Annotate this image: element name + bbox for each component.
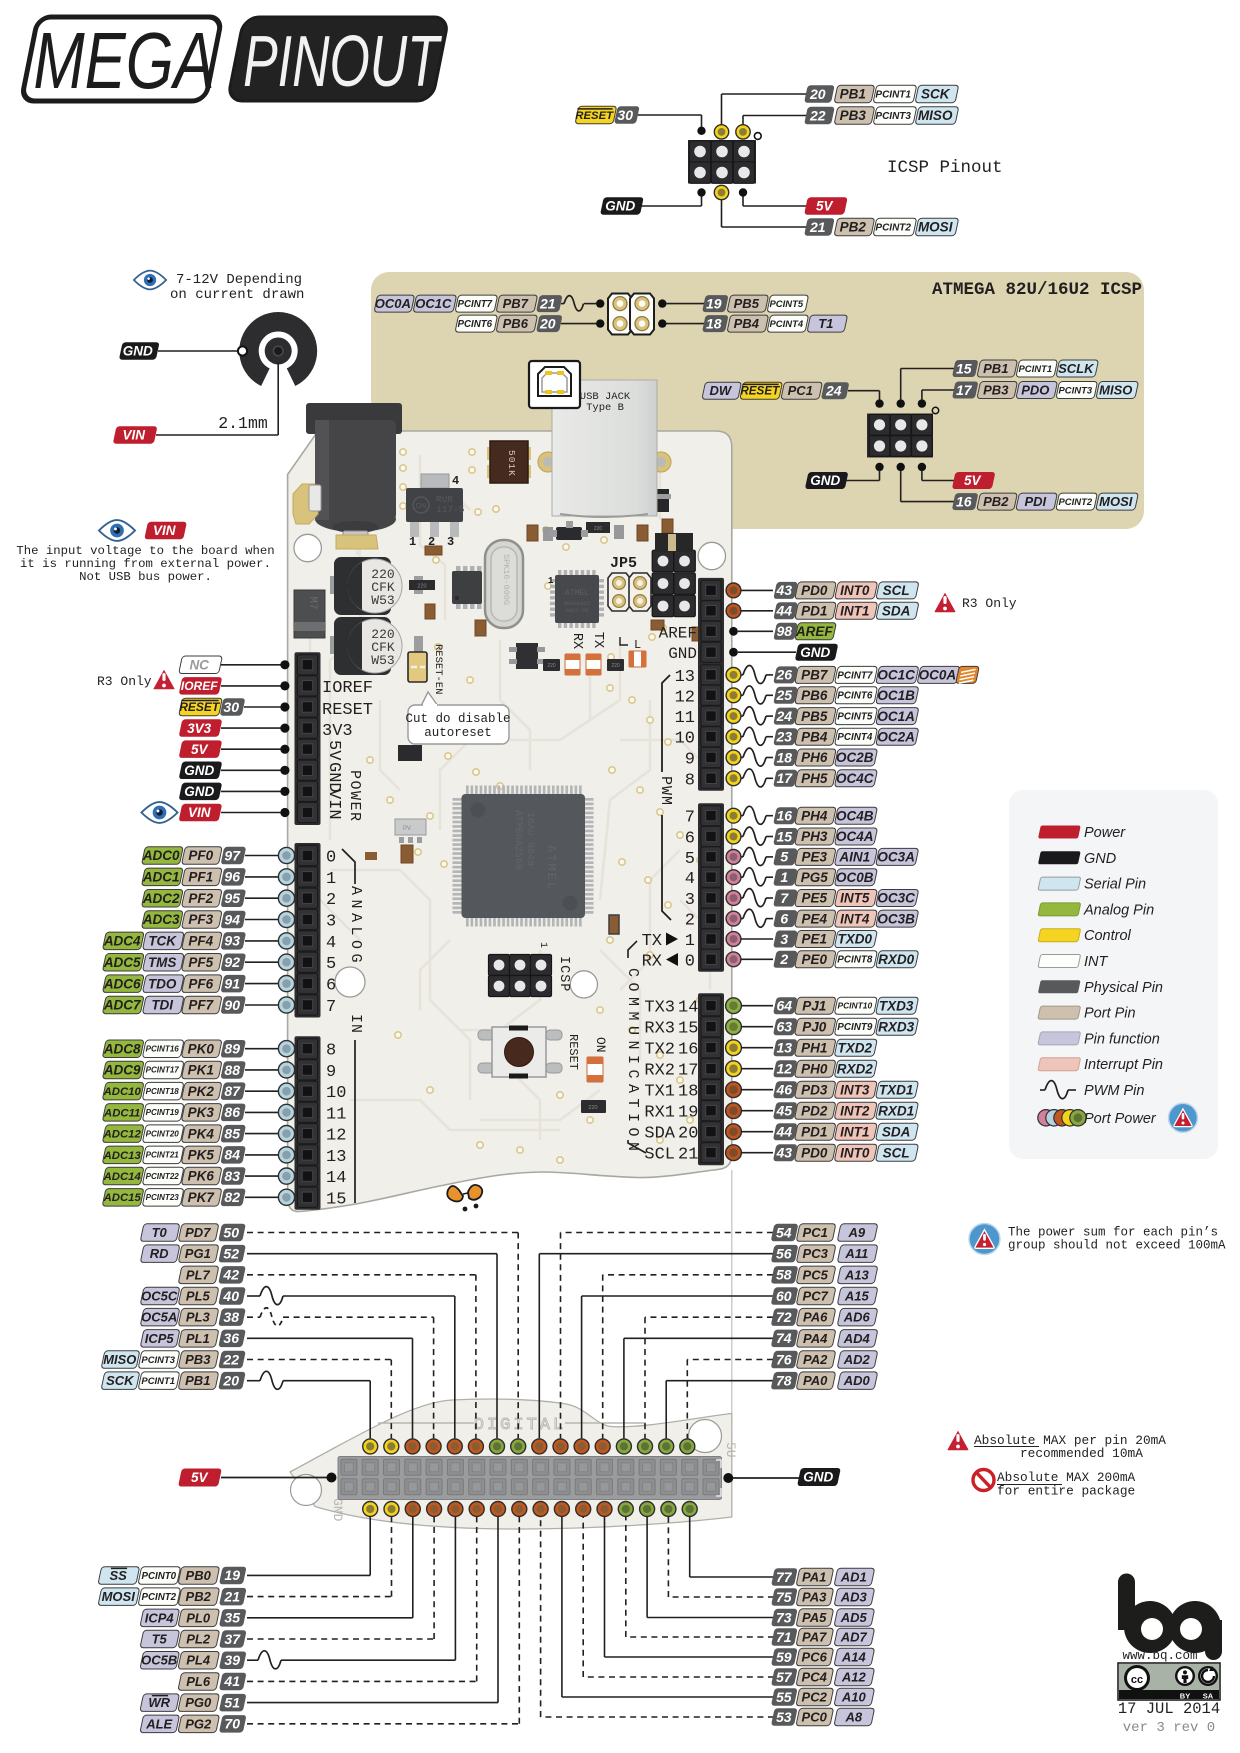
svg-text:VIN: VIN <box>123 428 146 443</box>
svg-text:OC4A: OC4A <box>836 829 874 844</box>
svg-text:24: 24 <box>776 708 793 724</box>
svg-text:117-5: 117-5 <box>436 504 465 515</box>
svg-text:PF6: PF6 <box>188 976 213 991</box>
svg-text:22: 22 <box>809 107 826 123</box>
svg-text:COMMUNICATION: COMMUNICATION <box>624 968 641 1157</box>
svg-text:PK2: PK2 <box>188 1084 215 1099</box>
svg-text:10: 10 <box>326 1084 346 1103</box>
svg-text:36: 36 <box>223 1330 239 1346</box>
svg-text:PCINT6: PCINT6 <box>837 691 873 702</box>
svg-text:20: 20 <box>222 1373 239 1389</box>
svg-text:60: 60 <box>776 1288 792 1304</box>
svg-text:AREF: AREF <box>659 625 697 643</box>
svg-text:RX: RX <box>569 633 584 649</box>
svg-text:The input voltage to the board: The input voltage to the board when <box>16 544 274 558</box>
svg-text:PC0: PC0 <box>802 1710 828 1725</box>
svg-text:16AU 0648: 16AU 0648 <box>524 812 535 866</box>
svg-text:JP5: JP5 <box>610 555 637 572</box>
svg-text:45: 45 <box>776 1103 793 1119</box>
svg-text:recommended 10mA: recommended 10mA <box>1020 1446 1143 1461</box>
svg-text:GND: GND <box>803 1470 833 1485</box>
svg-text:PK6: PK6 <box>188 1169 215 1184</box>
svg-text:RESET-EN: RESET-EN <box>432 644 444 694</box>
svg-text:PF5: PF5 <box>188 955 213 970</box>
svg-text:ADC14: ADC14 <box>103 1171 142 1183</box>
svg-text:PK3: PK3 <box>188 1105 215 1120</box>
svg-text:ADC2: ADC2 <box>142 891 180 906</box>
svg-text:0921 PN: 0921 PN <box>565 607 588 614</box>
svg-text:PL4: PL4 <box>186 1653 211 1668</box>
svg-text:PJ0: PJ0 <box>802 1019 827 1034</box>
svg-text:220: 220 <box>417 584 426 590</box>
svg-text:17: 17 <box>678 1062 698 1081</box>
svg-text:1: 1 <box>780 869 788 885</box>
svg-text:9: 9 <box>326 1063 336 1082</box>
svg-text:OC4C: OC4C <box>836 771 874 786</box>
svg-text:18: 18 <box>706 315 722 331</box>
svg-text:PCINT19: PCINT19 <box>146 1108 180 1117</box>
svg-text:96: 96 <box>224 869 240 885</box>
svg-text:22: 22 <box>222 1351 239 1367</box>
svg-text:82: 82 <box>224 1189 240 1205</box>
svg-text:ADC13: ADC13 <box>103 1150 142 1162</box>
svg-text:Analog Pin: Analog Pin <box>1083 902 1154 918</box>
svg-text:TX3: TX3 <box>644 999 675 1018</box>
svg-text:PA4: PA4 <box>803 1331 828 1346</box>
svg-text:63: 63 <box>777 1019 793 1035</box>
svg-text:TMS: TMS <box>148 955 177 970</box>
svg-text:R3 Only: R3 Only <box>962 596 1017 611</box>
svg-text:AD1: AD1 <box>840 1570 867 1585</box>
svg-text:A9: A9 <box>847 1225 865 1240</box>
svg-text:14: 14 <box>678 999 698 1018</box>
svg-text:PB3: PB3 <box>840 108 867 123</box>
svg-text:Cut do disable: Cut do disable <box>405 712 510 726</box>
svg-text:51: 51 <box>224 1694 240 1710</box>
svg-text:46: 46 <box>776 1082 793 1098</box>
svg-text:PB4: PB4 <box>801 729 828 744</box>
svg-text:WR: WR <box>148 1695 170 1710</box>
svg-text:0: 0 <box>685 953 695 972</box>
svg-text:98: 98 <box>777 623 793 639</box>
svg-text:PC7: PC7 <box>803 1289 829 1304</box>
svg-text:PL3: PL3 <box>186 1310 211 1325</box>
svg-text:SCLK: SCLK <box>1058 361 1095 376</box>
svg-text:ICP5: ICP5 <box>145 1331 175 1346</box>
svg-text:PA6: PA6 <box>803 1310 828 1325</box>
svg-text:PB3: PB3 <box>185 1352 211 1367</box>
svg-text:ICP4: ICP4 <box>145 1610 175 1625</box>
svg-text:2.1mm: 2.1mm <box>218 414 268 433</box>
svg-text:PC4: PC4 <box>802 1670 828 1685</box>
svg-text:PF1: PF1 <box>188 870 213 885</box>
svg-text:TDO: TDO <box>148 976 177 991</box>
svg-text:56: 56 <box>776 1246 792 1262</box>
svg-text:64: 64 <box>777 998 793 1014</box>
svg-text:SCL: SCL <box>883 583 910 598</box>
svg-text:PK7: PK7 <box>188 1190 216 1205</box>
svg-text:for entire package: for entire package <box>997 1484 1135 1499</box>
svg-text:PB5: PB5 <box>734 296 760 311</box>
svg-text:Serial Pin: Serial Pin <box>1084 877 1146 893</box>
svg-text:PCINT7: PCINT7 <box>458 299 493 310</box>
svg-text:PCINT3: PCINT3 <box>141 1355 175 1366</box>
svg-text:44: 44 <box>776 603 793 619</box>
svg-text:INT0: INT0 <box>840 583 870 598</box>
svg-text:INT1: INT1 <box>840 604 869 619</box>
svg-text:90: 90 <box>224 997 240 1013</box>
svg-text:ICSP: ICSP <box>556 956 571 992</box>
svg-text:5V: 5V <box>191 742 209 757</box>
svg-text:PC1: PC1 <box>788 383 813 398</box>
svg-text:94: 94 <box>224 911 240 927</box>
svg-text:PCINT22: PCINT22 <box>146 1172 180 1181</box>
svg-text:PE1: PE1 <box>802 932 828 947</box>
svg-text:VIN: VIN <box>153 523 176 538</box>
svg-text:3V3: 3V3 <box>322 722 353 741</box>
svg-text:www.bq.com: www.bq.com <box>1122 1649 1197 1663</box>
svg-text:POWER: POWER <box>346 770 363 823</box>
svg-text:AD0: AD0 <box>843 1373 871 1388</box>
svg-text:23: 23 <box>776 729 793 745</box>
svg-text:PC6: PC6 <box>802 1650 828 1665</box>
svg-text:PCINT9: PCINT9 <box>837 1022 873 1033</box>
svg-text:GND: GND <box>123 344 153 359</box>
svg-text:3: 3 <box>326 913 336 932</box>
svg-text:OC5B: OC5B <box>141 1653 177 1668</box>
svg-text:ON: ON <box>416 503 427 510</box>
svg-text:MOSI: MOSI <box>1099 494 1133 509</box>
svg-text:Interrupt Pin: Interrupt Pin <box>1084 1057 1163 1073</box>
svg-text:95: 95 <box>224 890 240 906</box>
svg-text:2: 2 <box>779 951 788 967</box>
svg-text:PB7: PB7 <box>801 668 829 683</box>
svg-text:Control: Control <box>1084 928 1132 944</box>
svg-text:PL7: PL7 <box>186 1267 211 1282</box>
svg-text:3V3: 3V3 <box>187 721 212 736</box>
svg-text:PK5: PK5 <box>188 1148 215 1163</box>
svg-text:17: 17 <box>777 770 794 786</box>
svg-text:PCINT4: PCINT4 <box>770 319 804 330</box>
svg-text:OC4B: OC4B <box>836 808 874 823</box>
svg-text:Power: Power <box>1084 825 1126 841</box>
svg-text:5V: 5V <box>324 740 343 761</box>
svg-text:PB6: PB6 <box>503 316 529 331</box>
svg-text:PD0: PD0 <box>801 1145 828 1160</box>
svg-text:AD5: AD5 <box>840 1610 868 1625</box>
svg-text:TXD2: TXD2 <box>838 1040 873 1055</box>
svg-text:8: 8 <box>326 1042 336 1061</box>
svg-text:30: 30 <box>617 107 633 123</box>
svg-text:RX1: RX1 <box>644 1104 675 1123</box>
svg-text:5V: 5V <box>816 199 834 214</box>
svg-text:9: 9 <box>685 751 695 770</box>
svg-text:INT3: INT3 <box>840 1082 870 1097</box>
svg-text:PCINT5: PCINT5 <box>770 299 804 310</box>
svg-text:PB7: PB7 <box>503 296 529 311</box>
svg-text:PCINT0: PCINT0 <box>142 1571 177 1582</box>
svg-text:PC5: PC5 <box>803 1267 829 1282</box>
svg-text:43: 43 <box>776 1145 793 1161</box>
svg-text:17 JUL 2014: 17 JUL 2014 <box>1118 1700 1220 1718</box>
svg-text:PH3: PH3 <box>801 829 828 844</box>
svg-text:14: 14 <box>326 1169 346 1188</box>
svg-text:7: 7 <box>685 809 695 828</box>
svg-text:RXD3: RXD3 <box>878 1019 915 1034</box>
svg-text:39: 39 <box>224 1652 240 1668</box>
svg-text:220: 220 <box>588 1105 597 1111</box>
svg-text:24: 24 <box>825 383 842 399</box>
svg-text:11: 11 <box>326 1105 346 1124</box>
svg-text:41: 41 <box>223 1673 240 1689</box>
svg-text:PDO: PDO <box>1021 383 1049 398</box>
svg-text:PL0: PL0 <box>186 1610 211 1625</box>
svg-text:PCINT21: PCINT21 <box>146 1151 180 1160</box>
svg-text:AIN1: AIN1 <box>838 850 870 865</box>
svg-text:ATMEL: ATMEL <box>544 845 558 891</box>
svg-text:Not USB bus power.: Not USB bus power. <box>79 570 212 584</box>
svg-text:PG5: PG5 <box>801 870 829 885</box>
svg-text:PA7: PA7 <box>802 1630 827 1645</box>
svg-text:PL2: PL2 <box>186 1632 211 1647</box>
svg-text:220: 220 <box>594 526 603 532</box>
svg-text:1: 1 <box>685 932 695 951</box>
svg-text:PCINT2: PCINT2 <box>142 1592 177 1603</box>
svg-text:PCINT7: PCINT7 <box>837 670 873 681</box>
svg-text:PG1: PG1 <box>185 1246 211 1261</box>
svg-text:OC0A: OC0A <box>375 296 411 311</box>
svg-text:SPK16-000G: SPK16-000G <box>501 554 511 605</box>
svg-text:DW: DW <box>709 383 732 398</box>
svg-text:7: 7 <box>326 998 336 1017</box>
svg-text:501K: 501K <box>506 450 517 477</box>
svg-text:TXD1: TXD1 <box>879 1082 914 1097</box>
svg-text:The power sum for each pin’s: The power sum for each pin’s <box>1008 1226 1218 1240</box>
svg-text:NC: NC <box>189 658 209 673</box>
svg-text:T0: T0 <box>152 1225 168 1240</box>
svg-text:PF7: PF7 <box>188 998 214 1013</box>
svg-text:4: 4 <box>326 934 336 953</box>
svg-text:IOREF: IOREF <box>322 679 373 698</box>
svg-text:GND: GND <box>810 473 840 488</box>
svg-text:5V: 5V <box>191 1470 209 1485</box>
svg-text:5: 5 <box>326 955 336 974</box>
svg-text:MISO: MISO <box>103 1352 136 1367</box>
svg-text:IOREF: IOREF <box>181 679 218 693</box>
svg-text:TX: TX <box>642 932 662 951</box>
svg-text:Port Power: Port Power <box>1084 1111 1157 1127</box>
svg-text:88: 88 <box>224 1062 240 1078</box>
svg-text:220: 220 <box>611 663 620 669</box>
svg-text:OC5C: OC5C <box>141 1289 178 1304</box>
svg-text:PB2: PB2 <box>983 494 1009 509</box>
svg-text:54: 54 <box>776 1224 792 1240</box>
svg-text:13: 13 <box>777 1040 793 1056</box>
svg-text:26: 26 <box>776 667 793 683</box>
svg-text:PC1: PC1 <box>803 1225 828 1240</box>
svg-text:PB5: PB5 <box>801 709 828 724</box>
svg-text:PF4: PF4 <box>188 934 213 949</box>
svg-text:78: 78 <box>776 1373 792 1389</box>
svg-text:PF2: PF2 <box>188 891 213 906</box>
svg-text:15: 15 <box>956 360 972 376</box>
svg-text:76: 76 <box>776 1351 792 1367</box>
svg-text:21: 21 <box>539 295 556 311</box>
svg-text:75: 75 <box>776 1589 792 1605</box>
svg-text:220: 220 <box>547 663 556 669</box>
svg-text:W53: W53 <box>371 593 394 608</box>
svg-text:52: 52 <box>223 1246 239 1262</box>
svg-text:INT: INT <box>1084 954 1109 970</box>
svg-text:MEGA: MEGA <box>33 16 214 106</box>
svg-text:INT2: INT2 <box>840 1103 870 1118</box>
svg-text:PA2: PA2 <box>803 1352 828 1367</box>
svg-text:ADC10: ADC10 <box>103 1086 142 1098</box>
svg-text:T1: T1 <box>818 316 833 331</box>
svg-text:ATMEGA 82U/16U2 ICSP: ATMEGA 82U/16U2 ICSP <box>932 280 1142 300</box>
svg-text:PB0: PB0 <box>186 1568 212 1583</box>
svg-text:6: 6 <box>685 830 695 849</box>
svg-text:AD2: AD2 <box>843 1352 871 1367</box>
svg-text:TX2: TX2 <box>644 1041 675 1060</box>
svg-text:GND: GND <box>330 1498 345 1522</box>
svg-text:PB1: PB1 <box>983 361 1008 376</box>
svg-text:PL1: PL1 <box>186 1331 210 1346</box>
svg-text:TX1: TX1 <box>644 1083 675 1102</box>
svg-text:83: 83 <box>224 1168 240 1184</box>
svg-text:OC2B: OC2B <box>836 750 874 765</box>
svg-text:15: 15 <box>678 1020 698 1039</box>
svg-text:ADC12: ADC12 <box>103 1129 142 1141</box>
svg-text:TX: TX <box>590 632 605 648</box>
svg-text:RESET: RESET <box>575 110 614 122</box>
svg-text:43: 43 <box>776 582 793 598</box>
svg-text:PCINT17: PCINT17 <box>146 1066 180 1075</box>
svg-text:12: 12 <box>777 1061 793 1077</box>
svg-text:PE4: PE4 <box>802 911 828 926</box>
svg-text:92: 92 <box>224 954 240 970</box>
svg-text:PG0: PG0 <box>185 1695 212 1710</box>
svg-text:13: 13 <box>675 668 695 687</box>
svg-text:44: 44 <box>776 1124 793 1140</box>
svg-text:PH4: PH4 <box>801 808 828 823</box>
svg-text:Port Pin: Port Pin <box>1084 1006 1136 1022</box>
svg-text:PC3: PC3 <box>803 1246 829 1261</box>
svg-text:PB1: PB1 <box>840 87 866 102</box>
svg-text:PB2: PB2 <box>186 1589 212 1604</box>
svg-text:ADC11: ADC11 <box>103 1107 140 1119</box>
svg-text:PJ1: PJ1 <box>802 998 826 1013</box>
svg-text:on current drawn: on current drawn <box>170 287 304 303</box>
svg-text:16: 16 <box>678 1041 698 1060</box>
svg-text:PCINT2: PCINT2 <box>1059 497 1093 508</box>
svg-text:PE0: PE0 <box>802 952 828 967</box>
svg-text:PINOUT: PINOUT <box>243 22 443 102</box>
svg-text:2: 2 <box>326 891 336 910</box>
svg-text:OC1A: OC1A <box>877 709 915 724</box>
svg-text:72: 72 <box>776 1309 792 1325</box>
svg-text:OC5A: OC5A <box>141 1310 177 1325</box>
svg-text:PB1: PB1 <box>185 1373 210 1388</box>
svg-text:3: 3 <box>685 891 695 910</box>
svg-text:PE3: PE3 <box>802 850 828 865</box>
svg-text:PK0: PK0 <box>188 1041 215 1056</box>
svg-text:21: 21 <box>809 219 826 235</box>
svg-text:VIN: VIN <box>188 805 211 820</box>
svg-text:30: 30 <box>223 699 239 715</box>
svg-text:GND: GND <box>184 784 214 799</box>
svg-text:A11: A11 <box>844 1246 868 1261</box>
svg-text:M7: M7 <box>306 596 318 609</box>
svg-text:MISO: MISO <box>1099 383 1132 398</box>
svg-text:PWM: PWM <box>657 776 674 806</box>
svg-text:RX: RX <box>642 953 662 972</box>
svg-text:GND: GND <box>668 645 697 663</box>
svg-text:SCK: SCK <box>921 87 951 102</box>
svg-text:5: 5 <box>780 849 788 865</box>
svg-text:GND: GND <box>184 763 214 778</box>
svg-text:PCINT2: PCINT2 <box>875 222 911 233</box>
svg-text:73: 73 <box>776 1609 792 1625</box>
svg-text:A15: A15 <box>844 1289 870 1304</box>
svg-text:37: 37 <box>224 1631 241 1647</box>
svg-text:AD6: AD6 <box>843 1310 871 1325</box>
svg-text:IN: IN <box>347 1014 364 1034</box>
svg-text:PK4: PK4 <box>188 1126 215 1141</box>
svg-text:RX3: RX3 <box>644 1020 675 1039</box>
svg-text:GND: GND <box>605 199 635 214</box>
svg-text:PA3: PA3 <box>802 1590 827 1605</box>
svg-text:PH0: PH0 <box>801 1061 828 1076</box>
svg-text:PV: PV <box>403 826 411 832</box>
svg-text:group should not exceed 100mA: group should not exceed 100mA <box>1008 1239 1226 1253</box>
svg-text:it is running from external po: it is running from external power. <box>20 557 271 571</box>
svg-text:13: 13 <box>326 1148 346 1167</box>
svg-text:PF0: PF0 <box>188 848 213 863</box>
svg-text:PCINT8: PCINT8 <box>837 955 873 966</box>
svg-text:MOSI: MOSI <box>102 1589 136 1604</box>
svg-text:ver 3 rev 0: ver 3 rev 0 <box>1123 1720 1215 1736</box>
svg-text:INT4: INT4 <box>840 911 870 926</box>
svg-text:PF3: PF3 <box>188 912 213 927</box>
svg-text:ADC6: ADC6 <box>103 976 141 991</box>
svg-text:ALE: ALE <box>145 1716 172 1731</box>
svg-text:PCINT10: PCINT10 <box>837 1001 872 1011</box>
svg-text:PK1: PK1 <box>188 1063 214 1078</box>
svg-text:87: 87 <box>224 1083 241 1099</box>
svg-text:PH5: PH5 <box>801 771 828 786</box>
svg-text:OC1B: OC1B <box>877 688 915 703</box>
svg-text:58: 58 <box>776 1267 792 1283</box>
svg-text:PB2: PB2 <box>840 220 867 235</box>
svg-text:PA0: PA0 <box>803 1373 828 1388</box>
svg-text:74: 74 <box>776 1330 792 1346</box>
svg-text:1: 1 <box>537 942 548 948</box>
svg-text:91: 91 <box>224 975 240 991</box>
svg-text:Physical Pin: Physical Pin <box>1084 980 1163 996</box>
svg-text:RESET: RESET <box>179 700 221 714</box>
svg-text:12: 12 <box>326 1127 346 1146</box>
svg-text:PD1: PD1 <box>801 1124 827 1139</box>
svg-text:MISO: MISO <box>918 108 953 123</box>
svg-text:ADC8: ADC8 <box>103 1041 141 1056</box>
svg-text:AREF: AREF <box>795 624 834 639</box>
svg-text:ADC7: ADC7 <box>103 998 142 1013</box>
svg-text:15: 15 <box>326 1190 346 1209</box>
svg-text:PCINT1: PCINT1 <box>1019 364 1053 375</box>
svg-text:6: 6 <box>780 910 788 926</box>
svg-text:SCL: SCL <box>883 1145 910 1160</box>
